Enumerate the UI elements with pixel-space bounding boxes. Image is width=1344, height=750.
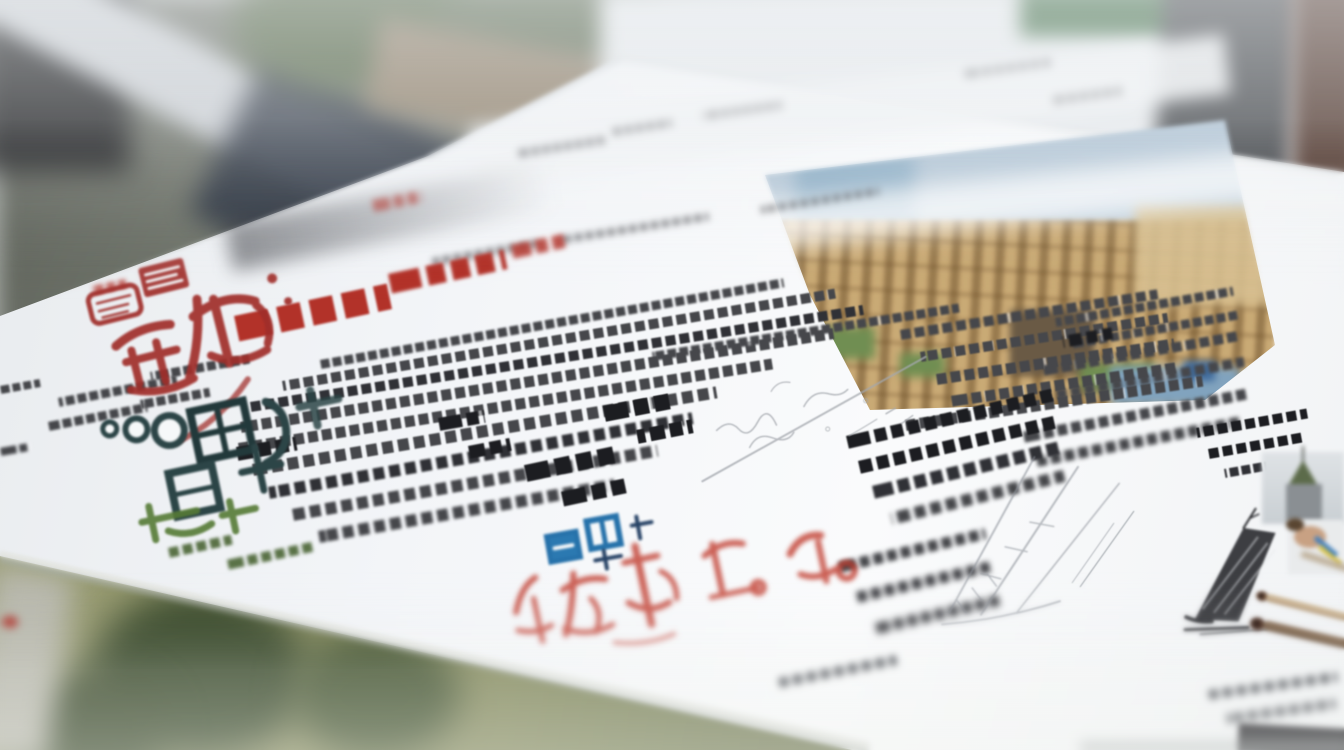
pseudo-text-row bbox=[702, 101, 782, 120]
pseudo-text-row bbox=[1208, 672, 1338, 700]
pseudo-text-row bbox=[0, 443, 31, 456]
photo-of-printed-page bbox=[0, 0, 1344, 750]
dome-roof bbox=[1288, 460, 1318, 486]
pseudo-text-row bbox=[372, 190, 423, 211]
green-brush-glyphs bbox=[139, 485, 259, 550]
pseudo-text-row bbox=[515, 136, 605, 158]
pseudo-text-row bbox=[778, 655, 898, 688]
calligraphy-strokes bbox=[114, 323, 173, 347]
pseudo-text-row bbox=[506, 234, 566, 260]
pseudo-text-row bbox=[1226, 699, 1336, 724]
seal-stamp-outline bbox=[87, 284, 143, 325]
pseudo-text-row bbox=[1052, 86, 1123, 105]
dome-photo-fragment bbox=[1262, 452, 1344, 524]
soft-shadow-bottom bbox=[1080, 742, 1344, 750]
hair-blob bbox=[1286, 518, 1304, 531]
pseudo-text-row bbox=[560, 213, 709, 244]
pseudo-text-row bbox=[760, 187, 880, 214]
pseudo-text-row bbox=[0, 379, 41, 394]
pseudo-text-row bbox=[962, 57, 1052, 78]
logotype-circle bbox=[123, 416, 149, 442]
pseudo-text-row bbox=[612, 119, 673, 136]
logotype-circle bbox=[152, 413, 188, 449]
pencil-guide-lines bbox=[1070, 505, 1150, 595]
logotype-circle bbox=[101, 421, 118, 438]
dome-tower-body bbox=[1286, 484, 1322, 520]
